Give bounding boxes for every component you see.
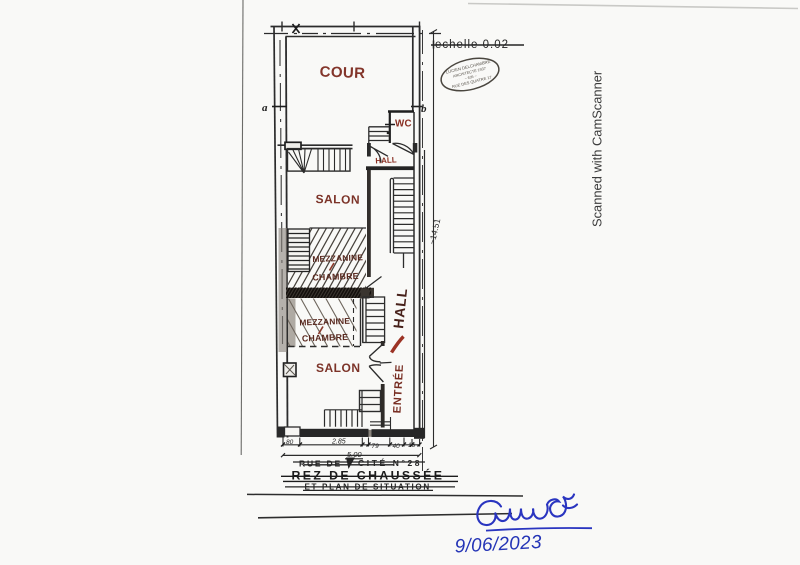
svg-text:b: b: [421, 103, 427, 115]
svg-text:16: 16: [408, 442, 416, 449]
svg-text:COUR: COUR: [319, 64, 365, 83]
svg-text:HALL: HALL: [375, 155, 397, 165]
svg-text:MEZZANINE: MEZZANINE: [312, 252, 363, 264]
svg-text:2.85: 2.85: [331, 439, 346, 446]
svg-text:MEZZANINE: MEZZANINE: [299, 316, 350, 328]
svg-text:79: 79: [372, 443, 380, 450]
svg-text:ENTRÉE: ENTRÉE: [391, 364, 407, 414]
svg-text:Scanned with CamScanner: Scanned with CamScanner: [590, 70, 605, 227]
svg-text:RUE DE: RUE DE: [299, 459, 342, 469]
svg-text:CHAMBRE: CHAMBRE: [312, 271, 359, 283]
svg-text:CITÉ N°28: CITÉ N°28: [358, 458, 422, 468]
svg-text:40: 40: [393, 443, 401, 450]
svg-text:80: 80: [286, 439, 294, 446]
svg-text:WC: WC: [395, 119, 412, 130]
svg-text:SALON: SALON: [316, 361, 361, 375]
svg-text:CHAMBRE: CHAMBRE: [302, 332, 349, 344]
svg-text:REZ DE CHAUSSÉE: REZ DE CHAUSSÉE: [292, 468, 445, 483]
svg-text:a: a: [262, 102, 268, 114]
svg-text:SALON: SALON: [315, 192, 360, 207]
